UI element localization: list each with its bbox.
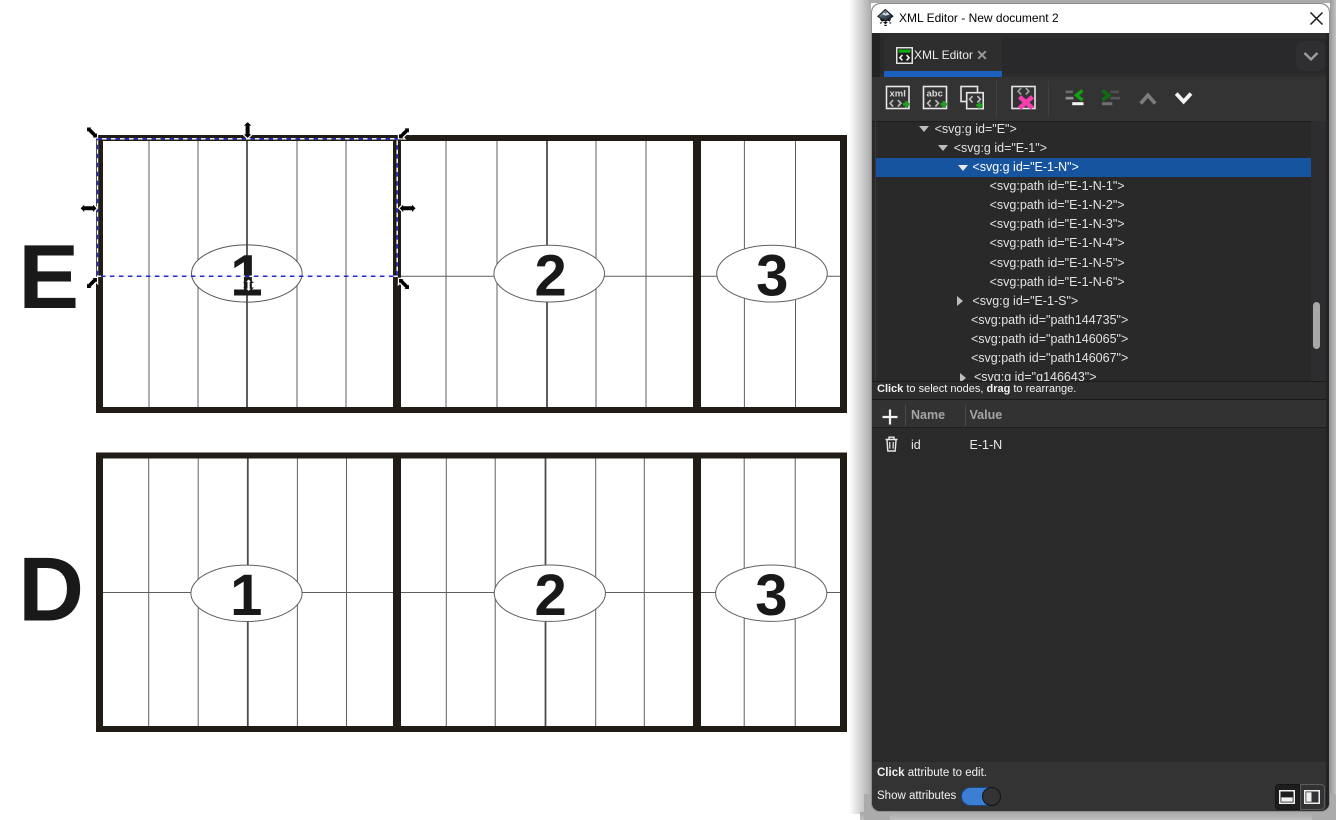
svg-text:abc: abc <box>927 89 943 100</box>
svg-text:D: D <box>18 540 84 641</box>
svg-text:2: 2 <box>534 244 566 309</box>
svg-text:2: 2 <box>534 563 566 628</box>
svg-text:xml: xml <box>890 89 906 100</box>
svg-text:E: E <box>18 227 79 328</box>
svg-text:3: 3 <box>755 563 787 628</box>
svg-text:1: 1 <box>230 563 262 628</box>
svg-text:3: 3 <box>756 244 788 309</box>
